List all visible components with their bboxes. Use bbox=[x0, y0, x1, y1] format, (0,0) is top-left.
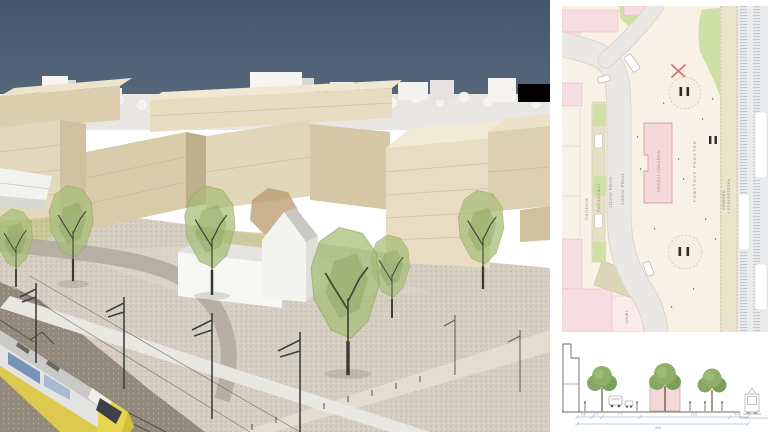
site-plan-svg: CHODNÍK PARKOVÁNÍ JÍZDNÍ PRUH JÍZDNÍ PRU… bbox=[562, 6, 768, 332]
plan-cycle-path bbox=[720, 6, 738, 332]
label-jizdni-pruh-2: JÍZDNÍ PRUH bbox=[620, 174, 625, 206]
presentation-board: CHODNÍK PARKOVÁNÍ JÍZDNÍ PRUH JÍZDNÍ PRU… bbox=[0, 0, 768, 432]
section-svg: 3.5 2.0 7.0 19.0 5.0 36.5 bbox=[562, 338, 768, 432]
section-train bbox=[743, 388, 761, 414]
label-drazni-vodarna: DRÁŽNÍ VODÁRNA bbox=[656, 151, 661, 192]
label-path-1: CHODNÍK bbox=[722, 190, 726, 210]
dim-2-0: 2.0 bbox=[594, 413, 599, 417]
dim-5-0: 5.0 bbox=[734, 413, 739, 417]
plan-railway-corridor bbox=[738, 6, 768, 332]
dim-total: 36.5 bbox=[655, 426, 661, 430]
dim-7-0: 7.0 bbox=[618, 413, 623, 417]
render-3d-svg bbox=[0, 0, 550, 432]
section-vehicles bbox=[609, 396, 633, 408]
section-drawing: 3.5 2.0 7.0 19.0 5.0 36.5 bbox=[562, 338, 768, 432]
plan-parking bbox=[592, 102, 606, 262]
section-building-outline bbox=[563, 344, 579, 412]
label-parkovani: PARKOVÁNÍ bbox=[596, 183, 601, 212]
render-3d-view bbox=[0, 0, 550, 432]
label-chodnik: CHODNÍK bbox=[584, 197, 589, 220]
label-path-2: + CYKLOSTEZKA bbox=[727, 178, 731, 214]
label-pobytovy-prostor: POBYTOVÝ PROSTOR bbox=[692, 140, 697, 202]
dim-3-5: 3.5 bbox=[581, 413, 586, 417]
section-dimensions: 3.5 2.0 7.0 19.0 5.0 36.5 bbox=[576, 413, 750, 431]
site-plan: CHODNÍK PARKOVÁNÍ JÍZDNÍ PRUH JÍZDNÍ PRU… bbox=[562, 6, 768, 332]
dim-19-0: 19.0 bbox=[691, 413, 697, 417]
label-loubi: LOUBÍ bbox=[625, 311, 629, 323]
label-jizdni-pruh-1: JÍZDNÍ PRUH bbox=[608, 177, 613, 209]
